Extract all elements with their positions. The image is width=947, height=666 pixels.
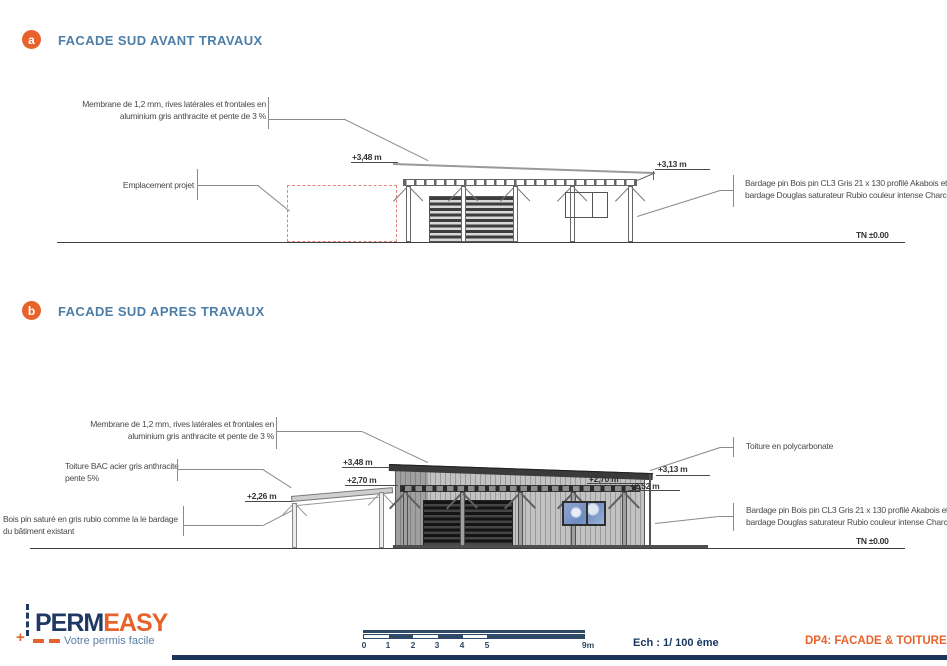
dim-label-270-left: +2,70 m — [347, 475, 376, 485]
scale-segment — [463, 635, 488, 638]
scale-segment — [487, 635, 584, 638]
scale-segment — [413, 635, 438, 638]
tn-label-b: TN ±0.00 — [856, 536, 889, 546]
section-b-badge: b — [22, 301, 41, 320]
scale-bar-top-strip — [363, 630, 585, 633]
annotation-bardage-b: Bardage pin Bois pin CL3 Gris 21 x 130 p… — [746, 505, 947, 528]
window-b — [562, 501, 606, 526]
dim-label-348-b: +3,48 m — [343, 457, 372, 467]
leader-line — [718, 516, 733, 517]
leader-line — [184, 525, 263, 526]
timber-post — [406, 186, 411, 242]
leader-line — [178, 469, 263, 470]
logo-dash — [33, 639, 44, 643]
timber-post — [461, 186, 466, 242]
annotation-bardage-b-line2: bardage Douglas saturateur Rubio couleur… — [746, 517, 947, 529]
annotation-membrane-a-line2: aluminium gris anthracite et pente de 3 … — [82, 111, 266, 123]
leader-tick — [268, 97, 269, 129]
leader-line — [198, 185, 259, 186]
ground-line-b — [30, 548, 905, 549]
leader-line — [262, 469, 291, 488]
annotation-bardage-a: Bardage pin Bois pin CL3 Gris 21 x 130 p… — [745, 178, 947, 201]
dim-line — [245, 501, 295, 502]
scale-label-0: 0 — [362, 640, 367, 650]
leader-line — [720, 447, 733, 448]
dim-line — [351, 162, 398, 163]
timber-post — [513, 186, 518, 242]
scale-bar — [363, 630, 585, 639]
leader-tick — [733, 175, 734, 207]
annotation-bardage-a-line2: bardage Douglas saturateur Rubio couleur… — [745, 190, 947, 202]
annotation-toiture-bac-line2: pente 5% — [65, 473, 179, 485]
window-a-divider — [592, 193, 593, 217]
timber-post-b — [518, 492, 523, 548]
window-b-divider — [586, 503, 588, 524]
dim-line — [628, 490, 680, 491]
permeasy-logo: PERMEASY — [35, 609, 167, 638]
annotation-bardage-b-line1: Bardage pin Bois pin CL3 Gris 21 x 130 p… — [746, 505, 947, 517]
scale-segment — [389, 635, 414, 638]
annotation-polycarbonate-line: Toiture en polycarbonate — [746, 441, 833, 453]
scale-segment — [364, 635, 389, 638]
window-a — [565, 192, 608, 218]
section-a-badge: a — [22, 30, 41, 49]
dim-line — [655, 169, 710, 170]
wall-edge-left-b — [395, 470, 396, 548]
leader-line — [268, 119, 345, 120]
scale-label-9m: 9m — [582, 640, 594, 650]
leader-line — [720, 190, 733, 191]
scale-label-2: 2 — [411, 640, 416, 650]
logo-dash — [49, 639, 60, 643]
logo-tagline: Votre permis facile — [64, 635, 154, 647]
annotation-bardage-a-line1: Bardage pin Bois pin CL3 Gris 21 x 130 p… — [745, 178, 947, 190]
scale-label-3: 3 — [435, 640, 440, 650]
dim-line — [342, 467, 390, 468]
tn-label-a: TN ±0.00 — [856, 230, 889, 240]
dim-label-226: +2,26 m — [247, 491, 276, 501]
annotation-membrane-b-line2: aluminium gris anthracite et pente de 3 … — [90, 431, 274, 443]
dim-line — [656, 475, 710, 476]
fascia-rafters-b — [400, 485, 640, 492]
timber-post-b — [460, 492, 465, 548]
timber-post — [628, 186, 633, 242]
scale-label-4: 4 — [460, 640, 465, 650]
timber-post-b — [403, 492, 408, 548]
garage-door-slats-b — [423, 500, 513, 548]
scale-segment — [438, 635, 463, 638]
leader-tick — [177, 459, 178, 481]
leader-tick — [733, 503, 734, 531]
scale-text: Ech : 1/ 100 ème — [633, 637, 719, 649]
leader-line — [257, 185, 289, 212]
logo-dashed-vertical — [26, 604, 29, 636]
annotation-membrane-b-line1: Membrane de 1,2 mm, rives latérales et f… — [90, 419, 274, 431]
logo-plus-icon: + — [16, 629, 25, 646]
annotation-bois-pin: Bois pin saturé en gris rubio comme la l… — [3, 514, 178, 537]
leader-line — [263, 510, 293, 526]
dim-line — [345, 485, 398, 486]
leader-line — [276, 431, 362, 432]
leader-line — [655, 516, 718, 524]
annotation-emplacement: Emplacement projet — [123, 180, 194, 192]
leader-line — [637, 190, 720, 217]
carport-post — [379, 492, 384, 548]
ground-line-a — [57, 242, 905, 243]
dim-label-313-a: +3,13 m — [657, 159, 686, 169]
leader-tick — [733, 437, 734, 457]
annotation-emplacement-line: Emplacement projet — [123, 180, 194, 192]
logo-easy-text: EASY — [103, 609, 167, 637]
scale-label-1: 1 — [386, 640, 391, 650]
footer-rule-bar — [172, 655, 947, 660]
roof-membrane-line-a — [393, 163, 655, 174]
fascia-rafters-a — [403, 179, 637, 186]
dp4-facade-sheet: a FACADE SUD AVANT TRAVAUX Membrane de 1… — [0, 0, 947, 666]
timber-post-b — [622, 492, 627, 548]
section-b-title: FACADE SUD APRES TRAVAUX — [58, 304, 265, 319]
project-footprint-dashed-box — [287, 185, 397, 242]
annotation-polycarbonate: Toiture en polycarbonate — [746, 441, 833, 453]
annotation-membrane-a-line1: Membrane de 1,2 mm, rives latérales et f… — [82, 99, 266, 111]
garage-door-slats-a — [429, 196, 518, 242]
annotation-membrane-a: Membrane de 1,2 mm, rives latérales et f… — [82, 99, 266, 122]
annotation-toiture-bac: Toiture BAC acier gris anthracite pente … — [65, 461, 179, 484]
doc-reference: DP4: FACADE & TOITURE — [805, 635, 947, 647]
logo-perm-text: PERM — [35, 609, 103, 637]
annotation-membrane-b: Membrane de 1,2 mm, rives latérales et f… — [90, 419, 274, 442]
scale-label-5: 5 — [485, 640, 490, 650]
scale-bar-segments — [363, 634, 585, 639]
leader-tick — [276, 417, 277, 449]
roof-gutter-stub-a — [653, 171, 654, 180]
section-a-title: FACADE SUD AVANT TRAVAUX — [58, 33, 263, 48]
annotation-toiture-bac-line1: Toiture BAC acier gris anthracite — [65, 461, 179, 473]
dim-label-348-a: +3,48 m — [352, 152, 381, 162]
leader-tick — [183, 506, 184, 536]
annotation-bois-pin-line1: Bois pin saturé en gris rubio comme la l… — [3, 514, 178, 526]
annotation-bois-pin-line2: du bâtiment existant — [3, 526, 178, 538]
carport-post — [292, 503, 297, 548]
